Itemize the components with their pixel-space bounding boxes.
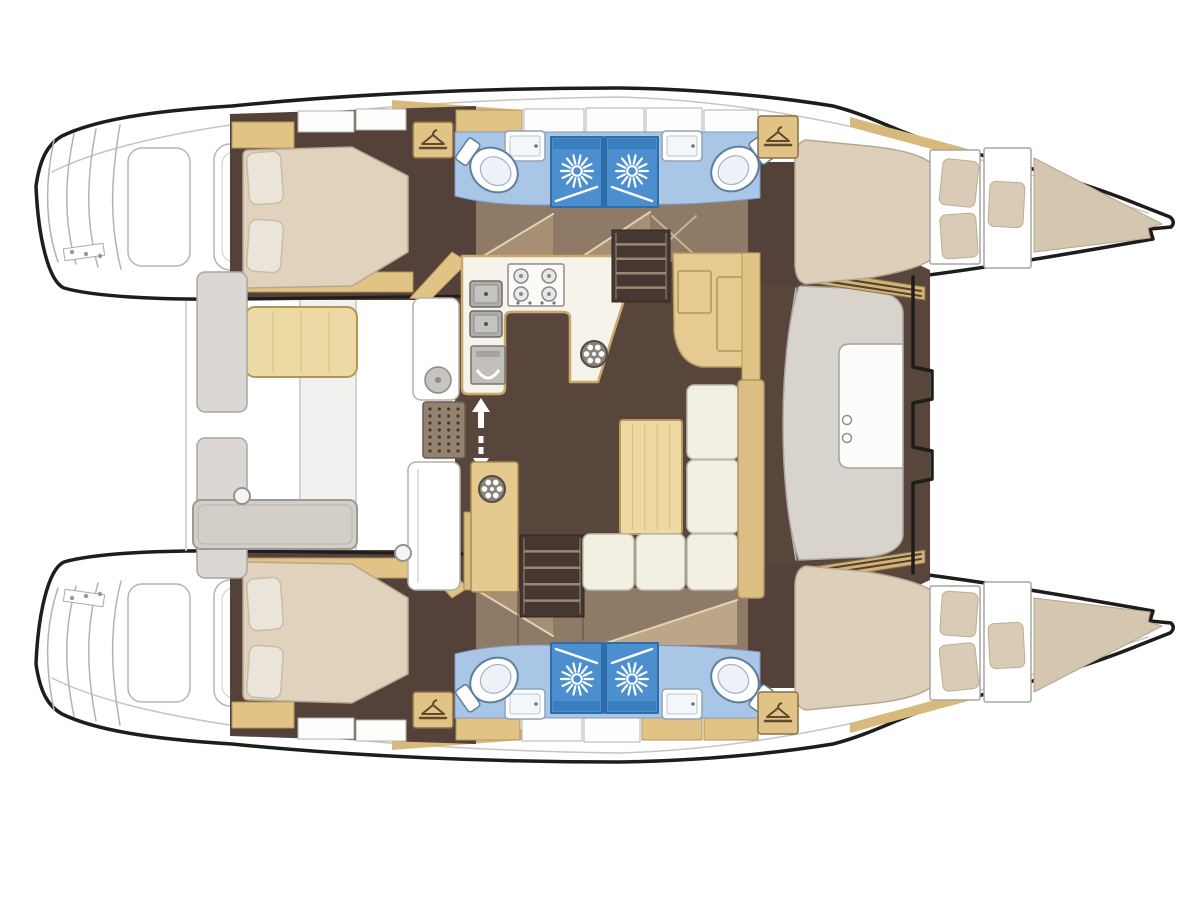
deck-ring-fitting [234,488,250,504]
cockpit-cabinet [197,272,247,412]
starboard-cleat [70,596,74,600]
sofa-cushion [636,534,685,590]
lounge-fitting [843,416,852,425]
port-fwd-pillow [940,213,979,259]
port-fwd-pillow [939,158,980,208]
washbasin [662,131,702,161]
port-aft-cabin-locker [298,111,354,132]
galley-sink [470,281,502,307]
starboard-bath-cabinet [704,715,758,740]
sofa-cushion [583,534,634,590]
port-aft-cabin-locker [356,109,406,130]
starboard-fwd-hanging-locker [758,692,798,734]
cockpit-module [408,462,460,590]
port-hull-stairs [612,230,670,302]
door-hatch-icon [479,476,505,502]
starboard-fwd-pillow [988,622,1025,669]
starboard-aft-bed-pillow [246,577,284,631]
galley-sink [470,311,502,337]
cockpit-bench [245,307,357,377]
cockpit-table [193,500,357,549]
port-fwd-bed [795,140,937,284]
shower-stall-shade [553,701,600,711]
starboard-aft-bed-pillow [246,645,284,699]
starboard-aft-cabin-headboard [232,702,294,728]
starboard-aft-cabin-locker [298,718,354,739]
deck-ring-fitting [395,545,411,561]
port-bath-locker [704,110,758,135]
stove-icon [508,264,564,306]
shower-stall-shade [608,701,656,711]
starboard-fwd-pillow [940,591,979,637]
forward-lounge-table [839,344,903,468]
starboard-cleat [84,594,88,598]
port-cleat [98,254,102,258]
starboard-fwd-pillow [939,642,980,692]
sofa-cushion [687,460,739,533]
sofa-cushion [687,385,739,459]
port-aft-bed-pillow [246,219,284,273]
sofa-backrest [738,380,764,598]
port-bath-locker [646,108,702,133]
sofa-cushion [687,534,738,590]
starboard-hull-stairs [520,535,584,617]
port-fwd-hanging-locker [758,116,798,158]
companionway-mat [423,402,465,458]
starboard-aft-cabin-locker [356,720,406,741]
lounge-fitting [843,434,852,443]
floor-plan-svg [0,0,1200,900]
port-aft-bed-pillow [246,151,284,205]
shower-stall-shade [608,139,656,149]
shower-stall-shade [553,139,600,149]
port-aft-cabin-headboard [232,122,294,148]
port-aft-hanging-locker [413,122,453,158]
oven-icon [471,346,505,384]
cockpit-sink-drain [435,377,441,383]
starboard-bath-locker [584,717,640,742]
port-bath-locker [586,108,644,133]
starboard-cleat [98,592,102,596]
saloon-table [620,420,682,534]
hatch-icon [581,341,607,367]
washbasin [662,689,702,719]
port-fwd-pillow [988,181,1025,228]
starboard-fwd-bed [795,566,937,710]
port-cleat [70,250,74,254]
catamaran-floor-plan [0,0,1200,900]
starboard-aft-hanging-locker [413,692,453,728]
port-cleat [84,252,88,256]
